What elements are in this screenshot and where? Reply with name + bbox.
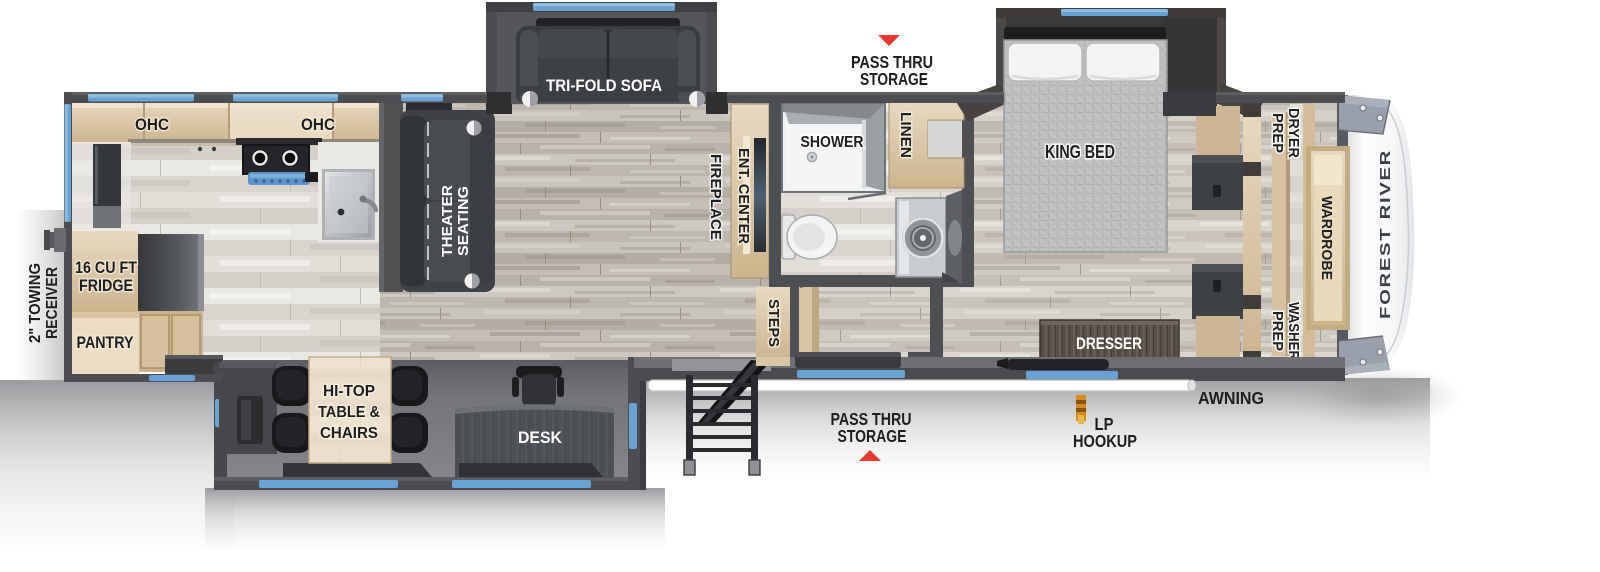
svg-text:DESK: DESK — [518, 429, 562, 447]
svg-text:SEATING: SEATING — [456, 186, 472, 256]
svg-text:THEATER: THEATER — [440, 184, 456, 257]
svg-text:ENT. CENTER: ENT. CENTER — [735, 148, 751, 245]
svg-text:STEPS: STEPS — [765, 299, 781, 347]
svg-text:2" TOWING: 2" TOWING — [27, 263, 44, 343]
svg-text:PREP: PREP — [1269, 113, 1285, 153]
svg-text:OHC: OHC — [135, 115, 169, 134]
svg-text:WASHER: WASHER — [1285, 302, 1301, 360]
svg-text:CHAIRS: CHAIRS — [320, 425, 378, 442]
svg-text:AWNING: AWNING — [1198, 388, 1264, 408]
svg-text:TABLE &: TABLE & — [318, 404, 380, 421]
svg-text:STORAGE: STORAGE — [838, 426, 907, 446]
svg-text:LINEN: LINEN — [897, 112, 913, 158]
svg-text:SHOWER: SHOWER — [801, 134, 864, 151]
svg-text:FRIDGE: FRIDGE — [79, 277, 133, 295]
svg-text:FIREPLACE: FIREPLACE — [707, 154, 723, 240]
svg-text:16 CU FT: 16 CU FT — [75, 259, 137, 277]
svg-text:OHC: OHC — [301, 115, 335, 134]
svg-text:HI-TOP: HI-TOP — [323, 383, 375, 400]
svg-text:RECEIVER: RECEIVER — [44, 267, 61, 339]
svg-text:FOREST RIVER: FOREST RIVER — [1378, 149, 1394, 319]
svg-text:PANTRY: PANTRY — [77, 334, 134, 352]
svg-text:STORAGE: STORAGE — [860, 69, 928, 89]
svg-text:KING BED: KING BED — [1045, 142, 1115, 162]
svg-text:HOOKUP: HOOKUP — [1073, 431, 1137, 451]
svg-text:DRESSER: DRESSER — [1076, 335, 1142, 353]
svg-text:PREP: PREP — [1269, 311, 1285, 351]
svg-text:WARDROBE: WARDROBE — [1318, 196, 1335, 280]
svg-text:DRYER: DRYER — [1285, 108, 1301, 159]
svg-text:TRI-FOLD SOFA: TRI-FOLD SOFA — [546, 77, 662, 95]
